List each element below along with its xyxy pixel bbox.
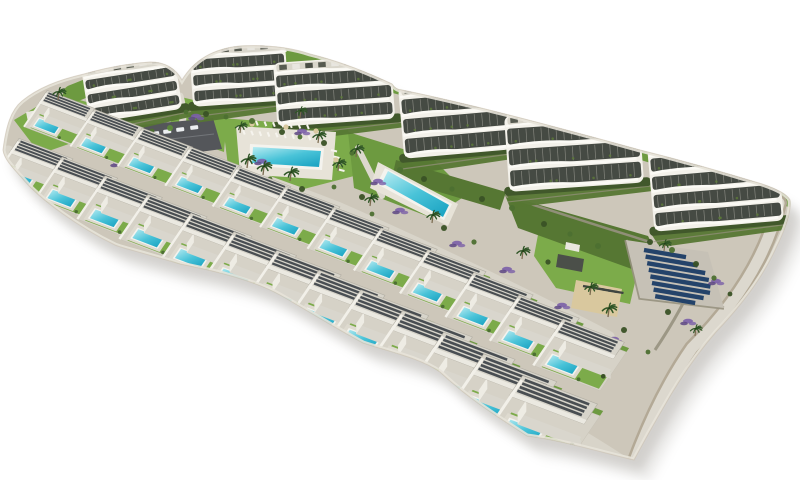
bush (299, 186, 305, 192)
bush (693, 261, 699, 267)
parasol (333, 157, 338, 162)
parasol (283, 124, 288, 129)
rooftop-unit (601, 111, 609, 117)
rooftop-unit (744, 139, 752, 145)
rooftop-unit (575, 113, 583, 119)
rooftop-unit (731, 141, 739, 147)
rooftop-unit (357, 59, 365, 65)
rooftop-unit (279, 65, 287, 71)
site-render-canvas (0, 0, 800, 480)
bush (441, 225, 447, 231)
rooftop-unit (456, 84, 464, 90)
bush (646, 350, 651, 355)
bush (567, 231, 572, 236)
rooftop-unit (292, 64, 300, 70)
rooftop-unit (318, 62, 326, 68)
bush (449, 186, 454, 191)
rooftop-unit (536, 116, 544, 122)
rooftop-unit (549, 115, 557, 121)
bush (184, 110, 189, 115)
bush (541, 221, 547, 227)
rooftop-unit (588, 112, 596, 118)
bush (479, 196, 485, 202)
rooftop-unit (757, 138, 765, 144)
bush (669, 247, 675, 253)
rooftop-unit (718, 142, 726, 148)
rooftop-unit (417, 87, 425, 93)
rooftop-unit (653, 147, 661, 153)
bush (421, 176, 427, 182)
bush (332, 185, 337, 190)
rooftop-unit (195, 49, 203, 55)
bush (359, 194, 365, 200)
rooftop-unit (370, 58, 378, 64)
bush (370, 212, 375, 217)
parasol (313, 128, 318, 133)
bush (711, 275, 716, 280)
bush (298, 135, 303, 140)
bush (509, 205, 515, 211)
bush (203, 111, 209, 117)
rooftop-unit (692, 144, 700, 150)
bush (279, 129, 285, 135)
rooftop-unit (430, 86, 438, 92)
bush (595, 243, 601, 249)
rooftop-unit (614, 110, 622, 116)
rooftop-unit (562, 114, 570, 120)
bush (545, 259, 550, 264)
bush (665, 309, 671, 315)
aerial-site-plan (0, 0, 800, 480)
bush (167, 125, 173, 131)
rooftop-unit (666, 146, 674, 152)
bush (321, 140, 327, 146)
bush (249, 118, 255, 124)
bush (224, 115, 229, 120)
rooftop-unit (443, 85, 451, 91)
sun-lounger (615, 292, 624, 294)
rooftop-unit (482, 82, 490, 88)
rooftop-unit (469, 83, 477, 89)
bush (621, 327, 627, 333)
rooftop-unit (305, 63, 313, 69)
bush (471, 239, 476, 244)
bush (728, 292, 733, 297)
rooftop-unit (679, 145, 687, 151)
rooftop-unit (705, 143, 713, 149)
bush (397, 167, 403, 173)
bush (647, 239, 653, 245)
